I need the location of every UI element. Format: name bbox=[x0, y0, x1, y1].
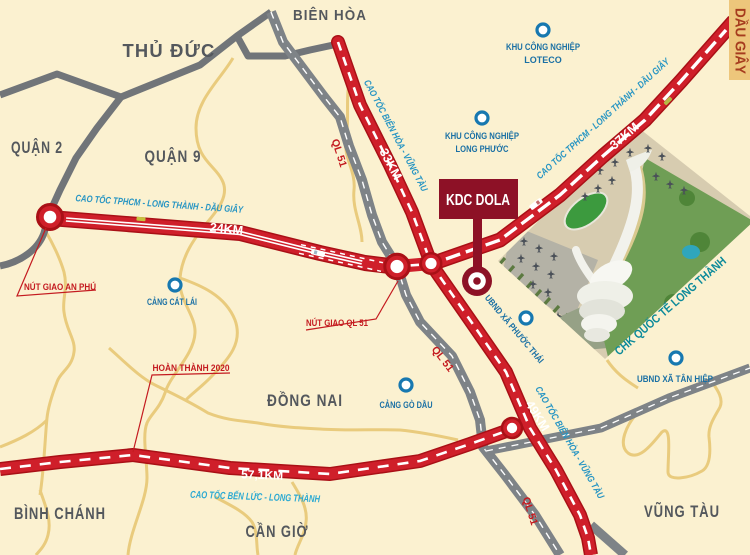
svg-text:QUẬN 2: QUẬN 2 bbox=[11, 138, 63, 157]
svg-text:CẢNG CÁT LÁI: CẢNG CÁT LÁI bbox=[147, 296, 197, 307]
svg-text:UBND XÃ TÂN HIỆP: UBND XÃ TÂN HIỆP bbox=[637, 373, 713, 384]
svg-text:HOÀN THÀNH 2020: HOÀN THÀNH 2020 bbox=[153, 363, 230, 374]
svg-text:NÚT GIAO AN PHÚ: NÚT GIAO AN PHÚ bbox=[24, 281, 96, 293]
svg-text:KDC DOLA: KDC DOLA bbox=[446, 192, 510, 209]
svg-text:ĐỒNG NAI: ĐỒNG NAI bbox=[267, 391, 343, 410]
svg-text:BÌNH CHÁNH: BÌNH CHÁNH bbox=[14, 504, 106, 523]
svg-text:VŨNG TÀU: VŨNG TÀU bbox=[644, 501, 720, 521]
svg-text:CẦN GIỜ: CẦN GIỜ bbox=[246, 522, 309, 541]
svg-text:KHU CÔNG NGHIỆP: KHU CÔNG NGHIỆP bbox=[445, 130, 519, 141]
svg-text:CẢNG GÒ DẦU: CẢNG GÒ DẦU bbox=[380, 399, 433, 410]
svg-text:57,1KM: 57,1KM bbox=[241, 467, 283, 482]
svg-text:LOTECO: LOTECO bbox=[524, 55, 562, 65]
svg-text:KHU CÔNG NGHIỆP: KHU CÔNG NGHIỆP bbox=[506, 41, 580, 52]
svg-text:LONG PHƯỚC: LONG PHƯỚC bbox=[456, 143, 509, 154]
svg-text:DẦU GIÂY: DẦU GIÂY bbox=[732, 8, 750, 74]
svg-text:NÚT GIAO QL 51: NÚT GIAO QL 51 bbox=[306, 317, 369, 329]
svg-text:THỦ ĐỨC: THỦ ĐỨC bbox=[123, 40, 216, 61]
svg-text:QUẬN 9: QUẬN 9 bbox=[145, 147, 202, 166]
svg-text:BIÊN HÒA: BIÊN HÒA bbox=[293, 6, 367, 24]
